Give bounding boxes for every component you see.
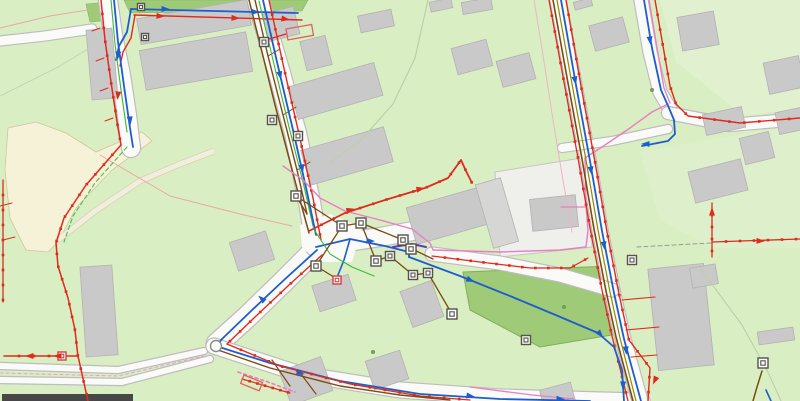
red-a-west-dot (582, 188, 585, 191)
red-a-west-dot (593, 251, 596, 254)
manhole-square-symbol (406, 244, 416, 254)
red-a-east-dot (583, 102, 586, 105)
red-a-west-dot (565, 93, 568, 96)
red-northeast-dot (399, 194, 402, 197)
red-left-street-dot (110, 82, 113, 85)
red-a-west-dot (554, 30, 557, 33)
red-a-west-dot (599, 282, 602, 285)
red-center-dot (274, 28, 277, 31)
red-left-edge-dot (2, 224, 5, 227)
manhole-square-symbol (409, 271, 418, 280)
red-a-west-dot (590, 235, 593, 238)
red-down-bl-dot (82, 380, 85, 383)
manhole-square-symbol (291, 191, 301, 201)
manhole-square-symbol (268, 116, 277, 125)
red-meadow-dot (103, 163, 106, 166)
red-sw-dot (279, 292, 282, 295)
red-left-street-dot (104, 41, 107, 44)
red-a-west-dot (577, 156, 580, 159)
red-left-edge-dot (2, 284, 5, 287)
red-a-west-dot (556, 46, 559, 49)
red-center-dot (287, 87, 290, 90)
manhole-square-symbol (294, 132, 303, 141)
red-b-corridor-dot (773, 119, 776, 122)
manhole-square-symbol (424, 269, 433, 278)
red-center-dot (271, 13, 274, 16)
red-pole-h-dot (767, 239, 770, 242)
vegetation-dot (562, 305, 566, 309)
red-center-dot (313, 204, 316, 207)
red-parking-road-dot (495, 263, 498, 266)
red-center-dot (284, 72, 287, 75)
red-meadow-dot (68, 303, 71, 306)
red-a-west-dot (625, 391, 628, 394)
red-a-east-dot (609, 250, 612, 253)
red-dots-se-dot (279, 389, 282, 392)
red-b-corridor-dot (670, 87, 673, 90)
red-down-bl-dot (85, 393, 88, 396)
red-a-west-dot (571, 125, 574, 128)
red-left-street-dot (112, 96, 115, 99)
manhole-square-symbol (356, 218, 366, 228)
red-dots-se-dot (248, 380, 251, 383)
red-sw-dot (249, 320, 252, 323)
red-b-corridor-dot (788, 118, 791, 121)
red-a-east-dot (604, 220, 607, 223)
red-left-edge-dot (2, 299, 5, 302)
red-left-edge-dot (2, 209, 5, 212)
vegetation-dot (650, 88, 654, 92)
red-a-east-dot (567, 14, 570, 17)
red-a-east-dot (647, 391, 650, 394)
red-pole-v-dot (711, 226, 714, 229)
red-meadow-dot (71, 204, 74, 207)
red-b-corridor-dot (674, 102, 677, 105)
red-northeast-dot (464, 168, 467, 171)
manhole-square-symbol (386, 252, 395, 261)
red-se-dot (384, 389, 387, 392)
red-parking-road-dot (457, 258, 460, 261)
red-northeast-dot (412, 190, 415, 193)
red-a-west-dot (606, 313, 609, 316)
red-a-east-dot (601, 206, 604, 209)
red-center-dot (304, 160, 307, 163)
red-a-east-dot (607, 235, 610, 238)
junction-node (211, 341, 222, 352)
red-northeast-dot (438, 180, 441, 183)
red-meadow-dot (65, 290, 68, 293)
red-left-street-dot (101, 13, 104, 16)
red-a-east-dot (596, 176, 599, 179)
red-meadow-dot (86, 183, 89, 186)
red-a-west-dot (559, 62, 562, 65)
red-pole-h-dot (795, 238, 798, 241)
red-se-dot (354, 384, 357, 387)
vegetation-dot (371, 350, 375, 354)
red-center-dot (294, 116, 297, 119)
red-sw-dot (229, 340, 232, 343)
red-a-east-dot (572, 43, 575, 46)
red-meadow-dot (78, 194, 81, 197)
red-b-corridor-dot (656, 14, 659, 17)
map-viewport[interactable] (0, 0, 800, 401)
manhole-square-symbol (333, 276, 341, 284)
red-a-west-dot (579, 172, 582, 175)
red-northeast-dot (372, 203, 375, 206)
red-parking-road-dot (482, 261, 485, 264)
red-se-dot (253, 354, 256, 357)
red-northeast-dot (470, 181, 473, 184)
red-center-dot (291, 101, 294, 104)
red-a-east-dot (578, 73, 581, 76)
red-northeast-dot (359, 207, 362, 210)
red-a-east-dot (599, 191, 602, 194)
red-sw-dot (290, 282, 293, 285)
red-se-dot (369, 386, 372, 389)
red-left-street-dot (106, 54, 109, 57)
red-meadow-dot (57, 266, 60, 269)
red-sw-dot (259, 311, 262, 314)
red-b-corridor-dot (664, 58, 667, 61)
manhole-square-symbol (447, 309, 457, 319)
red-northeast-dot (426, 186, 429, 189)
red-meadow-dot (64, 215, 67, 218)
red-a-east-dot (594, 161, 597, 164)
manhole-square-symbol (371, 256, 381, 266)
red-left-street-dot (119, 137, 122, 140)
red-northeast-dot (320, 223, 323, 226)
red-meadow-dot (75, 341, 78, 344)
red-se-dot (398, 391, 401, 394)
red-b-corridor-dot (758, 120, 761, 123)
red-left-street-dot (114, 110, 117, 113)
manhole-square-symbol (311, 261, 321, 271)
red-dots-se-dot (271, 387, 274, 390)
red-center-dot (277, 43, 280, 46)
red-a-east-dot (618, 294, 621, 297)
red-meadow-dot (55, 240, 58, 243)
manhole-square-symbol (138, 4, 145, 11)
red-sw-dot (269, 301, 272, 304)
red-b-corridor-dot (698, 116, 701, 119)
red-center-dot (307, 174, 310, 177)
red-parking-road-dot (521, 266, 524, 269)
red-se-dot (240, 349, 243, 352)
red-b-corridor-dot (667, 73, 670, 76)
red-parking-road-dot (547, 267, 550, 270)
red-a-west-dot (562, 77, 565, 80)
red-parking-road-dot (508, 264, 511, 267)
manhole-square-symbol (628, 256, 637, 265)
red-sw-dot (239, 330, 242, 333)
red-center-dot (300, 145, 303, 148)
red-pole-v-dot (711, 238, 714, 241)
red-left-edge-dot (2, 254, 5, 257)
manhole-square-symbol (142, 34, 149, 41)
red-parking-road-dot (560, 267, 563, 270)
red-a-west-dot (568, 109, 571, 112)
red-meadow-dot (56, 253, 59, 256)
red-parking-road-dot (444, 256, 447, 259)
red-a-west-dot (609, 329, 612, 332)
red-center-dot (319, 233, 322, 236)
red-a-east-dot (628, 338, 631, 341)
red-center-dot (316, 219, 319, 222)
red-dots-se-dot (264, 384, 267, 387)
red-meadow-dot (59, 227, 62, 230)
red-pole-v-dot (711, 250, 714, 253)
red-parking-road-dot (572, 265, 575, 268)
red-a-east-dot (615, 279, 618, 282)
red-dots-se-dot (287, 391, 290, 394)
red-a-west-dot (596, 266, 599, 269)
manhole-square-symbol (337, 221, 347, 231)
red-left-street-dot (108, 68, 111, 71)
red-b-corridor-dot (684, 112, 687, 115)
red-a-east-dot (612, 265, 615, 268)
red-se-dot (310, 373, 313, 376)
red-parking-road-dot (469, 260, 472, 263)
red-center-dot (281, 57, 284, 60)
red-pole-h-dot (725, 240, 728, 243)
red-a-east-dot (588, 132, 591, 135)
red-down-bl-dot (80, 367, 83, 370)
red-northeast-dot (450, 173, 453, 176)
dark-bar (2, 394, 133, 401)
red-left-edge-dot (2, 194, 5, 197)
red-b-corridor-dot (743, 121, 746, 124)
red-meadow-dot (71, 316, 74, 319)
red-a-east-dot (621, 309, 624, 312)
red-parking-road-dot (584, 258, 587, 261)
red-se-dot (325, 377, 328, 380)
red-left-edge-dot (2, 269, 5, 272)
red-b-corridor-dot (713, 118, 716, 121)
map-canvas[interactable] (0, 0, 800, 401)
red-b-corridor-dot (728, 120, 731, 123)
red-meadow-dot (111, 154, 114, 157)
red-a-east-dot (570, 28, 573, 31)
red-se-dot (339, 380, 342, 383)
red-a-east-dot (591, 146, 594, 149)
red-northeast-dot (333, 217, 336, 220)
red-se-dot (281, 365, 284, 368)
red-meadow-dot (94, 173, 97, 176)
red-a-east-dot (624, 323, 627, 326)
red-a-east-dot (580, 87, 583, 90)
manhole-square-symbol (758, 358, 768, 368)
building (677, 11, 719, 51)
red-dots-se-dot (256, 382, 259, 385)
manhole-square-symbol (522, 336, 531, 345)
red-northeast-dot (458, 161, 461, 164)
red-left-street-dot (103, 27, 106, 30)
red-a-west-dot (603, 298, 606, 301)
red-se-dot (267, 360, 270, 363)
red-pole-h-dot (781, 238, 784, 241)
red-a-east-dot (645, 362, 648, 365)
red-horiz-bl-dot (18, 355, 21, 358)
red-pole-h-dot (739, 240, 742, 243)
red-a-west-dot (587, 219, 590, 222)
red-a-west-dot (551, 14, 554, 17)
manhole-square-symbol (260, 38, 269, 47)
red-sw-dot (300, 273, 303, 276)
red-a-west-dot (574, 140, 577, 143)
red-horiz-bl-dot (48, 355, 51, 358)
red-a-east-dot (636, 350, 639, 353)
red-meadow-dot (61, 278, 64, 281)
red-meadow-dot (74, 328, 77, 331)
red-se-dot (458, 398, 461, 401)
building (86, 28, 118, 100)
red-a-east-dot (586, 117, 589, 120)
building (690, 264, 719, 288)
red-pole-h-dot (753, 239, 756, 242)
red-a-east-dot (648, 376, 651, 379)
red-left-street-dot (116, 124, 119, 127)
red-b-corridor-dot (661, 43, 664, 46)
building (80, 265, 118, 357)
red-northeast-dot (385, 198, 388, 201)
red-parking-road-dot (534, 267, 537, 270)
red-b-corridor-dot (659, 28, 662, 31)
red-a-west-dot (585, 203, 588, 206)
red-a-east-dot (575, 58, 578, 61)
